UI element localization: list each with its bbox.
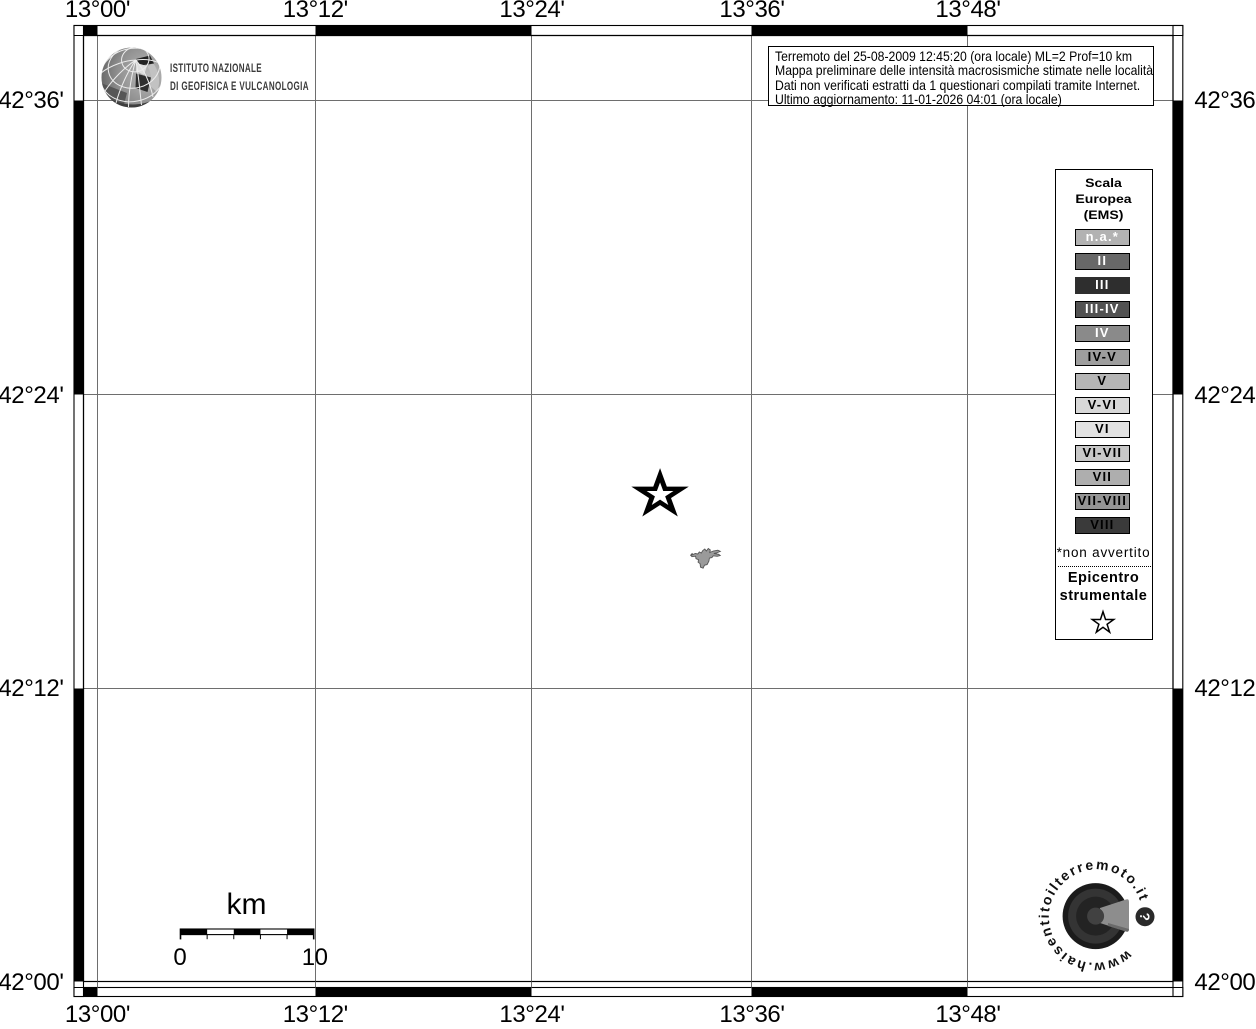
svg-text:?: ? — [1137, 912, 1152, 921]
